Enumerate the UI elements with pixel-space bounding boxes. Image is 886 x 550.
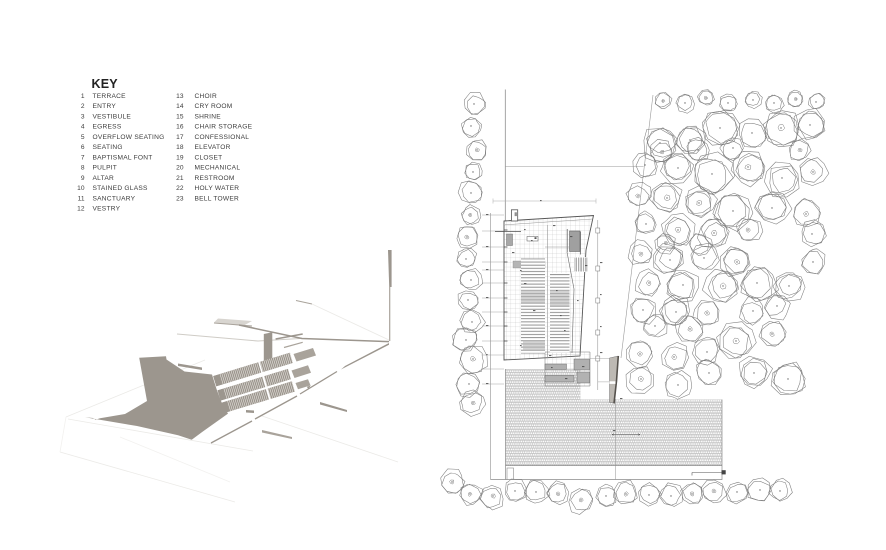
svg-text:2: 2 [81,103,85,110]
svg-text:13: 13 [176,93,184,100]
svg-text:21: 21 [176,175,184,182]
svg-text:OVERFLOW SEATING: OVERFLOW SEATING [93,134,165,141]
svg-text:14: 14 [176,103,184,110]
svg-text:TERRACE: TERRACE [93,93,127,100]
svg-text:VESTIBULE: VESTIBULE [93,114,132,121]
svg-text:22: 22 [176,185,184,192]
svg-text:5: 5 [81,134,85,141]
svg-text:17: 17 [176,134,184,141]
svg-text:VESTRY: VESTRY [93,206,121,213]
svg-text:19: 19 [176,154,184,161]
svg-text:CHOIR: CHOIR [195,93,218,100]
svg-text:HOLY WATER: HOLY WATER [195,185,240,192]
svg-text:CHAIR STORAGE: CHAIR STORAGE [195,124,253,131]
svg-text:CLOSET: CLOSET [195,154,223,161]
svg-text:15: 15 [176,114,184,121]
svg-text:ALTAR: ALTAR [93,175,115,182]
svg-text:ELEVATOR: ELEVATOR [195,144,231,151]
svg-text:SHRINE: SHRINE [195,114,222,121]
svg-text:RESTROOM: RESTROOM [195,175,235,182]
svg-text:SEATING: SEATING [93,144,123,151]
svg-text:8: 8 [81,165,85,172]
svg-text:16: 16 [176,124,184,131]
svg-text:EGRESS: EGRESS [93,124,122,131]
svg-text:9: 9 [81,175,85,182]
svg-text:20: 20 [176,165,184,172]
svg-text:12: 12 [77,206,85,213]
svg-text:4: 4 [81,124,85,131]
svg-text:CONFESSIONAL: CONFESSIONAL [195,134,250,141]
svg-text:3: 3 [81,114,85,121]
svg-text:7: 7 [81,154,85,161]
svg-text:10: 10 [77,185,85,192]
svg-text:23: 23 [176,195,184,202]
svg-text:SANCTUARY: SANCTUARY [93,195,136,202]
svg-text:11: 11 [78,195,85,202]
svg-text:BELL TOWER: BELL TOWER [195,195,240,202]
svg-text:MECHANICAL: MECHANICAL [195,165,241,172]
svg-text:STAINED GLASS: STAINED GLASS [93,185,149,192]
svg-text:1: 1 [81,93,85,100]
svg-text:ENTRY: ENTRY [93,103,117,110]
svg-text:CRY ROOM: CRY ROOM [195,103,233,110]
svg-text:PULPIT: PULPIT [93,165,118,172]
svg-text:BAPTISMAL FONT: BAPTISMAL FONT [93,154,153,161]
svg-text:KEY: KEY [92,77,119,91]
svg-text:18: 18 [176,144,184,151]
svg-text:6: 6 [81,144,85,151]
